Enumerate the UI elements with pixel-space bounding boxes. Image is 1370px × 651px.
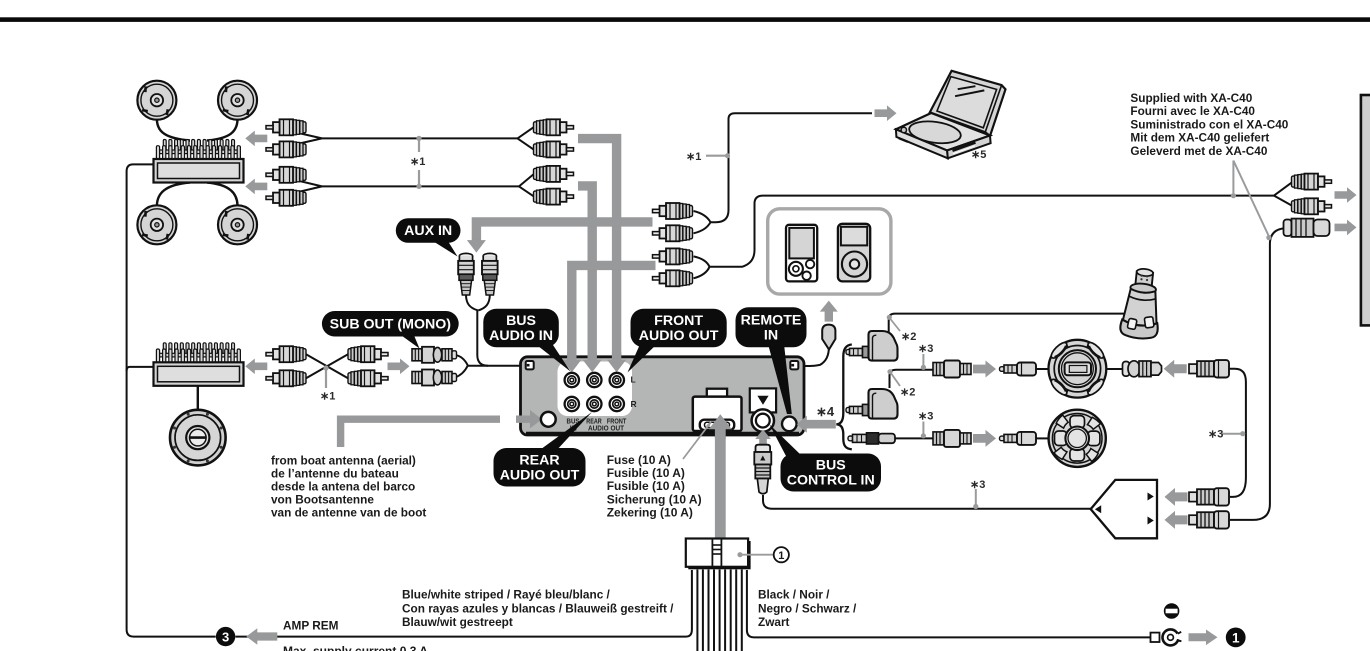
svg-text:∗3: ∗3 — [918, 411, 933, 423]
svg-text:Fusible (10 A): Fusible (10 A) — [607, 466, 685, 480]
svg-text:∗2: ∗2 — [900, 387, 915, 399]
svg-text:∗3: ∗3 — [918, 343, 933, 355]
svg-text:Fuse (10 A): Fuse (10 A) — [607, 453, 671, 467]
svg-text:∗2: ∗2 — [901, 331, 916, 343]
svg-text:AUDIO OUT: AUDIO OUT — [639, 328, 719, 344]
svg-text:∗5: ∗5 — [971, 149, 986, 161]
svg-text:∗4: ∗4 — [816, 404, 835, 419]
svg-text:Blue/white striped / Rayé bleu: Blue/white striped / Rayé bleu/blanc / — [402, 588, 611, 602]
svg-text:Fourni avec le XA-C40: Fourni avec le XA-C40 — [1130, 104, 1255, 118]
svg-text:from boat antenna (aerial): from boat antenna (aerial) — [271, 454, 416, 468]
svg-text:Con rayas azules y blancas / B: Con rayas azules y blancas / Blauweiß ge… — [402, 601, 674, 615]
svg-text:BUS: BUS — [816, 458, 846, 474]
svg-text:L: L — [631, 375, 636, 385]
svg-text:FRONT: FRONT — [654, 313, 703, 329]
svg-text:1: 1 — [1232, 630, 1240, 645]
svg-text:Black / Noir /: Black / Noir / — [758, 588, 830, 602]
svg-text:desde la antena del barco: desde la antena del barco — [271, 480, 415, 494]
svg-text:∗1: ∗1 — [686, 151, 701, 163]
svg-text:R: R — [631, 399, 637, 409]
svg-text:Supplied with XA-C40: Supplied with XA-C40 — [1130, 91, 1252, 105]
svg-text:Max. supply current 0.3 A: Max. supply current 0.3 A — [283, 644, 428, 651]
svg-text:REAR: REAR — [519, 452, 559, 468]
svg-text:AUDIO OUT: AUDIO OUT — [500, 468, 580, 484]
svg-text:IN: IN — [764, 327, 778, 343]
svg-text:Suministrado con el XA-C40: Suministrado con el XA-C40 — [1130, 117, 1288, 131]
svg-text:BUS: BUS — [506, 313, 536, 329]
svg-text:∗3: ∗3 — [970, 479, 985, 491]
svg-text:AUDIO IN: AUDIO IN — [489, 328, 553, 344]
svg-text:∗3: ∗3 — [1208, 429, 1223, 441]
svg-text:AUX IN: AUX IN — [404, 223, 452, 239]
svg-text:Geleverd met de XA-C40: Geleverd met de XA-C40 — [1130, 144, 1267, 158]
svg-text:Sicherung (10 A): Sicherung (10 A) — [607, 492, 702, 506]
svg-text:SUB OUT (MONO): SUB OUT (MONO) — [330, 316, 452, 332]
svg-text:1: 1 — [778, 550, 784, 562]
svg-text:∗1: ∗1 — [410, 156, 425, 168]
svg-text:Negro / Schwarz /: Negro / Schwarz / — [758, 601, 857, 615]
svg-text:3: 3 — [222, 629, 229, 644]
svg-text:CONTROL IN: CONTROL IN — [787, 473, 875, 489]
svg-text:Fusible (10 A): Fusible (10 A) — [607, 479, 685, 493]
svg-text:∗1: ∗1 — [320, 391, 335, 403]
svg-text:AUDIO OUT: AUDIO OUT — [588, 423, 624, 432]
svg-text:AMP REM: AMP REM — [283, 619, 339, 633]
svg-text:de l’antenne du bateau: de l’antenne du bateau — [271, 467, 399, 481]
svg-text:Zekering (10 A): Zekering (10 A) — [607, 506, 693, 520]
svg-text:REMOTE: REMOTE — [741, 312, 802, 328]
svg-text:von Bootsantenne: von Bootsantenne — [271, 493, 374, 507]
svg-text:Zwart: Zwart — [758, 615, 790, 629]
svg-text:Mit dem XA-C40 geliefert: Mit dem XA-C40 geliefert — [1130, 131, 1269, 145]
svg-text:Blauw/wit gestreept: Blauw/wit gestreept — [402, 615, 513, 629]
svg-text:van de antenne van de boot: van de antenne van de boot — [271, 506, 426, 520]
